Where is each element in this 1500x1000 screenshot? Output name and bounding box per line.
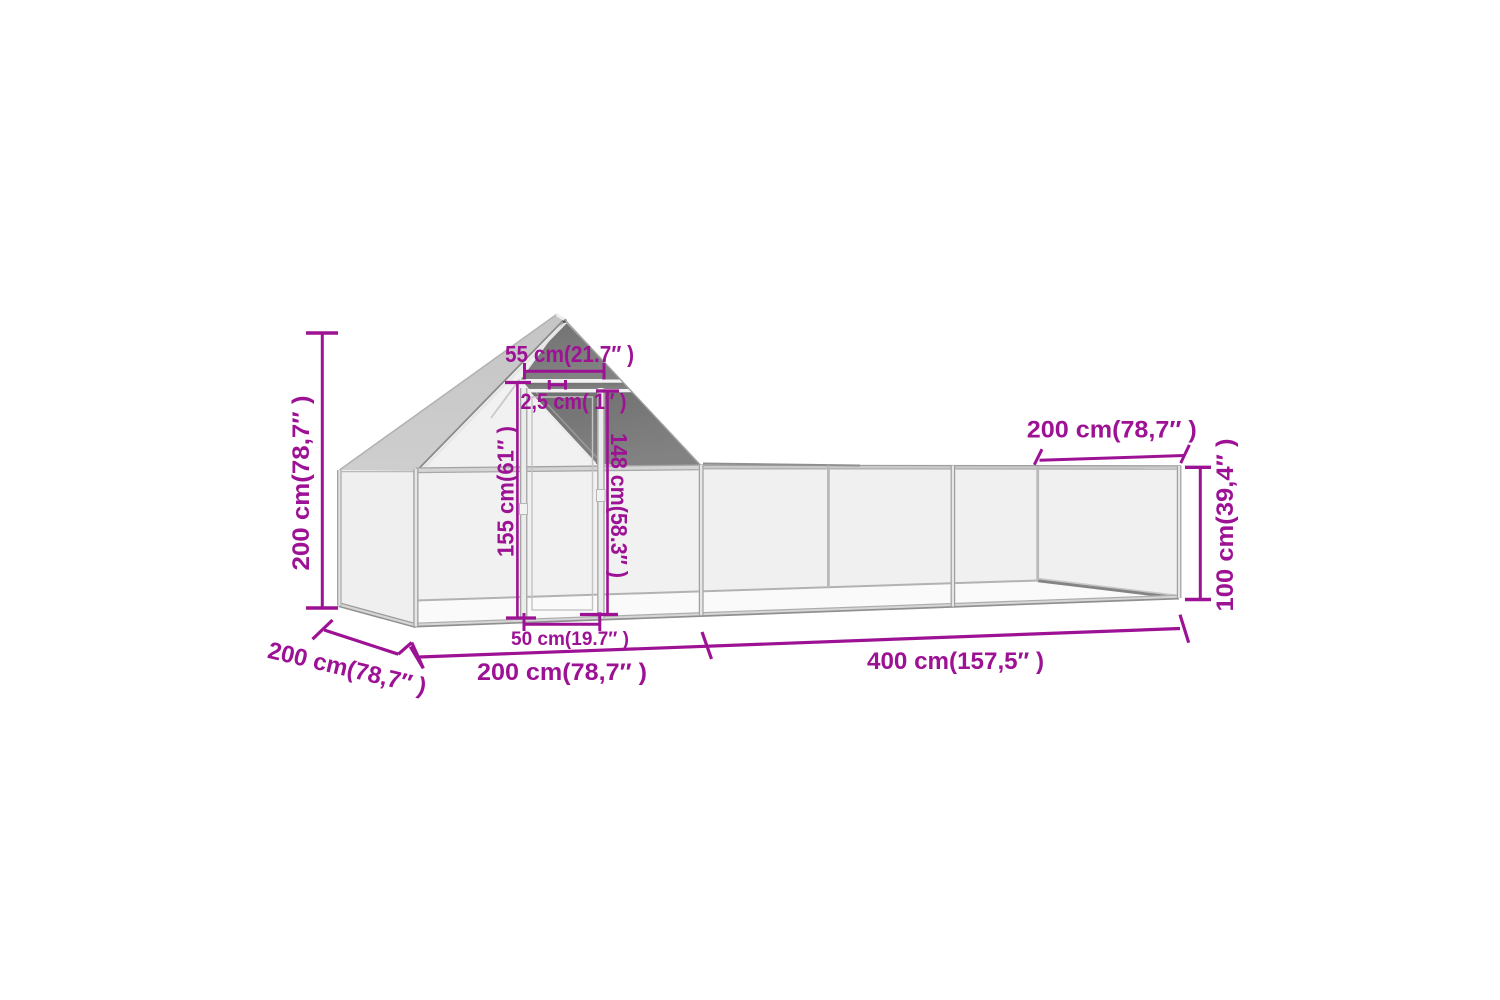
svg-text:200 cm(78,7″ ): 200 cm(78,7″ ) — [1027, 417, 1197, 444]
svg-text:200 cm(78,7″ ): 200 cm(78,7″ ) — [477, 659, 647, 686]
svg-text:148 cm(58.3″ ): 148 cm(58.3″ ) — [606, 433, 632, 578]
svg-text:155 cm(61″ ): 155 cm(61″ ) — [493, 426, 519, 557]
svg-text:400 cm(157,5″ ): 400 cm(157,5″ ) — [867, 648, 1044, 675]
svg-text:100 cm(39,4″ ): 100 cm(39,4″ ) — [1212, 439, 1239, 612]
svg-text:50 cm(19.7″ ): 50 cm(19.7″ ) — [511, 629, 629, 650]
svg-text:2,5 cm( 1″ ): 2,5 cm( 1″ ) — [521, 389, 627, 414]
svg-text:55 cm(21.7″ ): 55 cm(21.7″ ) — [505, 341, 634, 367]
svg-text:200 cm(78,7″ ): 200 cm(78,7″ ) — [288, 396, 315, 571]
